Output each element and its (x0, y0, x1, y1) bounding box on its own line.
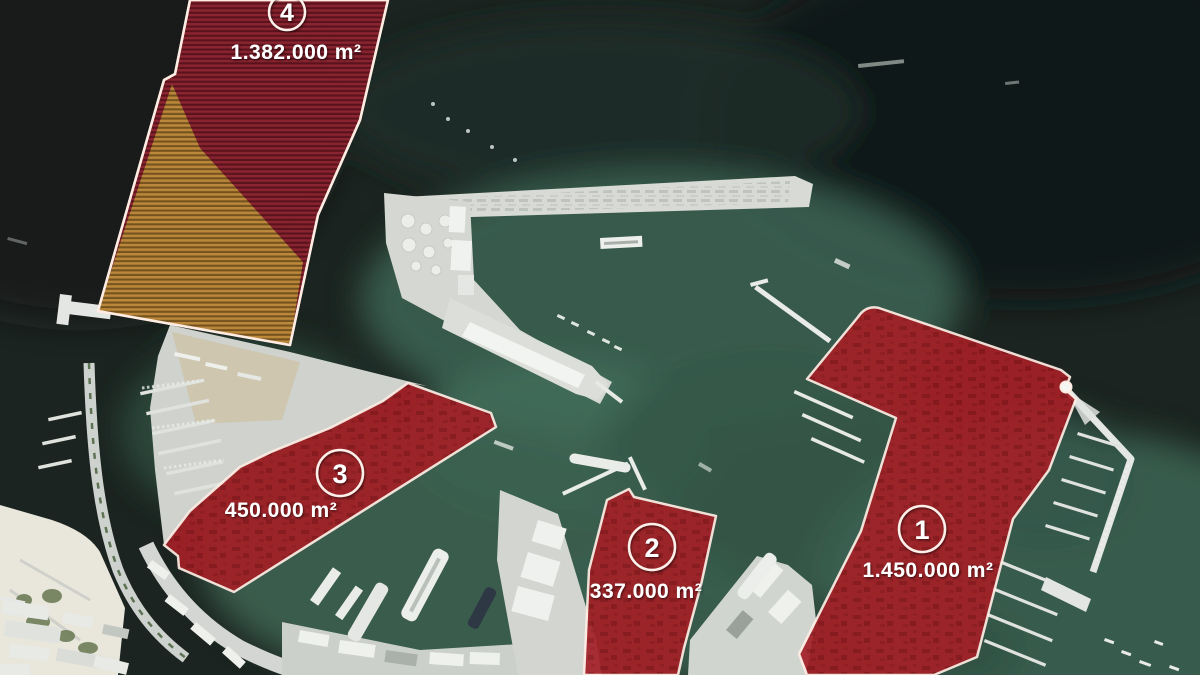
zone-4-area: 1.382.000 m² (231, 41, 362, 64)
zone-2-number: 2 (644, 533, 659, 563)
port-satellite-map: 4 1.382.000 m² 3 450.000 m² 2 337.000 m²… (0, 0, 1200, 675)
map-canvas: 4 1.382.000 m² 3 450.000 m² 2 337.000 m²… (0, 0, 1200, 675)
zone-1-number: 1 (914, 515, 929, 545)
zone-3-area: 450.000 m² (225, 499, 337, 522)
zone-1-corner-dot (1061, 382, 1072, 393)
zone-4-number: 4 (280, 0, 294, 27)
zone-1-area: 1.450.000 m² (863, 559, 994, 582)
zone-3-number: 3 (332, 459, 347, 489)
zone-2-area: 337.000 m² (590, 580, 702, 603)
